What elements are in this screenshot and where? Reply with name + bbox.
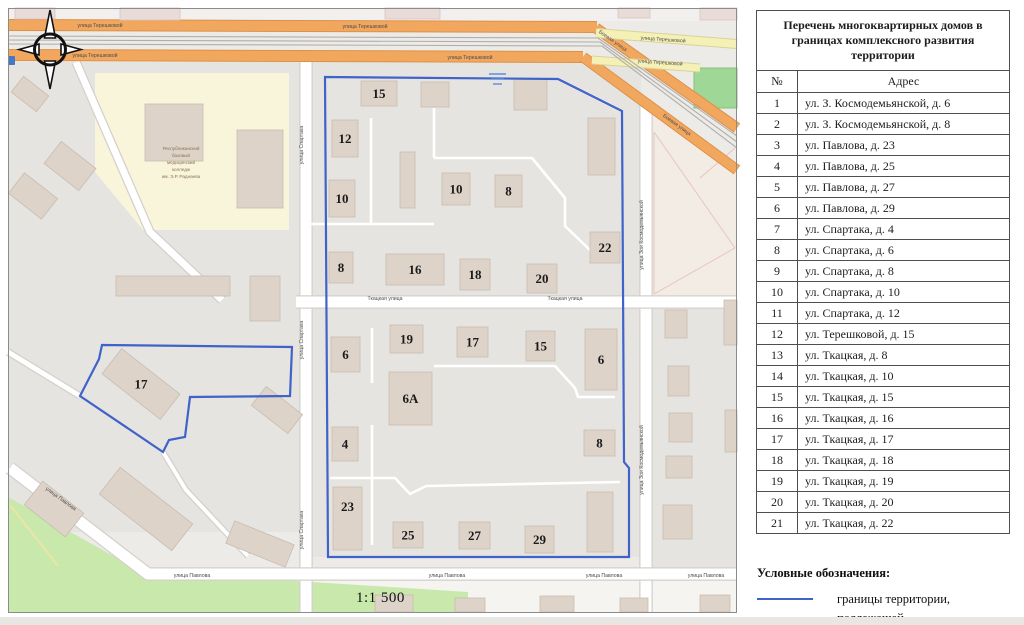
row-number: 14	[757, 366, 798, 387]
building-number: 17	[135, 377, 149, 392]
college-name-label: базовый	[172, 152, 190, 158]
building-6: 6	[331, 337, 360, 372]
college-name-label: им. Э.Р. Раднаева	[162, 174, 201, 179]
building-number: 4	[342, 437, 349, 452]
building-12: 12	[332, 120, 358, 157]
building-22: 22	[590, 232, 620, 263]
row-number: 1	[757, 93, 798, 114]
table-header-row: № Адрес	[757, 71, 1010, 93]
building-29: 29	[525, 526, 554, 553]
building	[620, 598, 648, 612]
building-footprint	[725, 410, 737, 452]
table-row: 3ул. Павлова, д. 23	[757, 135, 1010, 156]
college-name-label: Республиканский	[163, 145, 200, 151]
building-footprint	[700, 595, 730, 612]
row-number: 13	[757, 345, 798, 366]
street-name-label: улица Павлова	[174, 573, 211, 579]
table-row: 1ул. З. Космодемьянской, д. 6	[757, 93, 1010, 114]
building-number: 10	[450, 182, 463, 197]
page-edge-strip	[0, 617, 1024, 625]
building-number: 29	[533, 532, 547, 547]
column-header-number: №	[757, 71, 798, 93]
street-name-label: улица Павлова	[429, 573, 466, 579]
building	[116, 276, 230, 296]
building-number: 19	[400, 332, 414, 347]
building	[724, 300, 737, 345]
table-row: 2ул. З. Космодемьянской, д. 8	[757, 114, 1010, 135]
building-footprint	[333, 487, 362, 550]
row-address: ул. Ткацкая, д. 17	[798, 429, 1010, 450]
building	[700, 595, 730, 612]
street-name-label: улица Терешковой	[72, 52, 117, 59]
building-footprint	[250, 276, 280, 321]
building	[618, 8, 650, 18]
building-footprint	[669, 413, 692, 442]
street-name-label: улица Терешковой	[342, 23, 387, 30]
college-name-label: медицинский	[167, 159, 195, 165]
table-row: 7ул. Спартака, д. 4	[757, 219, 1010, 240]
row-address: ул. Ткацкая, д. 18	[798, 450, 1010, 471]
building-8: 8	[329, 252, 353, 283]
building-footprint	[421, 82, 449, 107]
building-6: 6	[585, 329, 617, 390]
address-table-panel: Перечень многоквартирных домов в граница…	[756, 10, 1010, 534]
building-number: 6	[342, 347, 349, 362]
map-scale-label: 1:1 500	[356, 590, 405, 606]
building-4: 4	[332, 427, 358, 461]
building-number: 15	[534, 339, 548, 354]
building	[385, 8, 440, 19]
building-number: 27	[468, 528, 482, 543]
row-number: 12	[757, 324, 798, 345]
table-row: 9ул. Спартака, д. 8	[757, 261, 1010, 282]
building-number: 8	[338, 260, 345, 275]
building	[665, 310, 687, 338]
building-number: 8	[596, 436, 603, 451]
building-16: 16	[386, 254, 444, 285]
row-number: 7	[757, 219, 798, 240]
building	[514, 79, 547, 110]
row-address: ул. З. Космодемьянской, д. 6	[798, 93, 1010, 114]
row-number: 19	[757, 471, 798, 492]
street-name-label: Ткацкая улица	[548, 296, 583, 302]
building-footprint	[120, 8, 180, 20]
building-footprint	[588, 118, 615, 175]
building-number: 20	[536, 271, 549, 286]
building	[666, 456, 692, 478]
row-number: 9	[757, 261, 798, 282]
building-number: 22	[599, 240, 612, 255]
row-address: ул. З. Космодемьянской, д. 8	[798, 114, 1010, 135]
building-number: 18	[469, 267, 483, 282]
building-footprint	[400, 152, 415, 208]
table-row: 16ул. Ткацкая, д. 16	[757, 408, 1010, 429]
building-footprint	[700, 8, 737, 20]
table-row: 17ул. Ткацкая, д. 17	[757, 429, 1010, 450]
page: 151210810228161820619171566А482325272917…	[0, 0, 1024, 625]
building	[700, 8, 737, 20]
building	[237, 130, 283, 208]
table-title: Перечень многоквартирных домов в граница…	[757, 11, 1010, 71]
building-number: 8	[505, 184, 512, 199]
row-address: ул. Спартака, д. 12	[798, 303, 1010, 324]
building-23: 23	[333, 487, 362, 550]
building-footprint	[116, 276, 230, 296]
legend-heading: Условные обозначения:	[757, 566, 1015, 581]
row-number: 11	[757, 303, 798, 324]
building-10: 10	[442, 173, 470, 205]
building	[725, 410, 737, 452]
building-number: 6А	[403, 391, 420, 406]
table-row: 18ул. Ткацкая, д. 18	[757, 450, 1010, 471]
building-number: 12	[339, 131, 352, 146]
building-footprint	[514, 79, 547, 110]
row-number: 21	[757, 513, 798, 534]
building-footprint	[385, 8, 440, 19]
row-address: ул. Ткацкая, д. 22	[798, 513, 1010, 534]
building	[668, 366, 689, 396]
table-row: 14ул. Ткацкая, д. 10	[757, 366, 1010, 387]
table-row: 5ул. Павлова, д. 27	[757, 177, 1010, 198]
map-canvas: 151210810228161820619171566А482325272917…	[0, 0, 745, 625]
building-15: 15	[361, 81, 397, 106]
building-6А: 6А	[389, 372, 432, 425]
row-address: ул. Терешковой, д. 15	[798, 324, 1010, 345]
street-name-label: улица Спартака	[299, 321, 305, 359]
building-10: 10	[329, 180, 355, 217]
row-number: 3	[757, 135, 798, 156]
building	[540, 596, 574, 612]
street-name-label: улица Терешковой	[447, 54, 492, 61]
row-address: ул. Павлова, д. 27	[798, 177, 1010, 198]
address-table: Перечень многоквартирных домов в граница…	[756, 10, 1010, 534]
street-name-label: улица Зои Космодемьянской	[638, 200, 645, 270]
building-18: 18	[460, 259, 490, 290]
bus-stop-icon	[8, 56, 15, 65]
building-number: 23	[341, 499, 355, 514]
row-address: ул. Спартака, д. 10	[798, 282, 1010, 303]
row-address: ул. Ткацкая, д. 16	[798, 408, 1010, 429]
building-8: 8	[495, 175, 522, 207]
building-number: 15	[373, 86, 387, 101]
building-footprint	[620, 598, 648, 612]
row-address: ул. Спартака, д. 8	[798, 261, 1010, 282]
legend-boundary-line-icon	[757, 598, 813, 600]
building-8: 8	[584, 430, 615, 456]
street-name-label: улица Павлова	[688, 573, 725, 579]
college-name-label: колледж	[172, 167, 191, 172]
row-number: 8	[757, 240, 798, 261]
building	[455, 598, 485, 612]
row-address: ул. Ткацкая, д. 15	[798, 387, 1010, 408]
row-address: ул. Ткацкая, д. 8	[798, 345, 1010, 366]
row-number: 6	[757, 198, 798, 219]
building-footprint	[587, 492, 613, 552]
row-number: 2	[757, 114, 798, 135]
building-footprint	[663, 505, 692, 539]
row-address: ул. Павлова, д. 29	[798, 198, 1010, 219]
table-row: 6ул. Павлова, д. 29	[757, 198, 1010, 219]
table-row: 19ул. Ткацкая, д. 19	[757, 471, 1010, 492]
building-footprint	[666, 456, 692, 478]
row-address: ул. Ткацкая, д. 10	[798, 366, 1010, 387]
building-footprint	[724, 300, 737, 345]
building	[587, 492, 613, 552]
row-address: ул. Павлова, д. 25	[798, 156, 1010, 177]
building-footprint	[618, 8, 650, 18]
table-row: 4ул. Павлова, д. 25	[757, 156, 1010, 177]
building-number: 17	[466, 335, 480, 350]
row-number: 10	[757, 282, 798, 303]
building-20: 20	[527, 264, 557, 293]
row-number: 16	[757, 408, 798, 429]
building	[400, 152, 415, 208]
street-name-label: Ткацкая улица	[368, 296, 403, 302]
row-address: ул. Спартака, д. 4	[798, 219, 1010, 240]
building-number: 6	[598, 352, 605, 367]
building-15: 15	[526, 331, 555, 361]
row-number: 4	[757, 156, 798, 177]
row-number: 17	[757, 429, 798, 450]
table-row: 21ул. Ткацкая, д. 22	[757, 513, 1010, 534]
row-address: ул. Павлова, д. 23	[798, 135, 1010, 156]
table-title-row: Перечень многоквартирных домов в граница…	[757, 11, 1010, 71]
table-row: 13ул. Ткацкая, д. 8	[757, 345, 1010, 366]
building-footprint	[668, 366, 689, 396]
building	[421, 82, 449, 107]
building-17: 17	[457, 327, 488, 357]
street-name-label: улица Спартака	[299, 126, 305, 164]
table-row: 20ул. Ткацкая, д. 20	[757, 492, 1010, 513]
table-row: 15ул. Ткацкая, д. 15	[757, 387, 1010, 408]
building-25: 25	[393, 522, 423, 548]
building-19: 19	[390, 325, 423, 353]
building-number: 25	[402, 528, 416, 543]
building-footprint	[540, 596, 574, 612]
table-row: 11ул. Спартака, д. 12	[757, 303, 1010, 324]
building-footprint	[665, 310, 687, 338]
row-number: 20	[757, 492, 798, 513]
building	[120, 8, 180, 20]
table-row: 10ул. Спартака, д. 10	[757, 282, 1010, 303]
row-number: 18	[757, 450, 798, 471]
building-footprint	[237, 130, 283, 208]
column-header-address: Адрес	[798, 71, 1010, 93]
street-name-label: улица Спартака	[299, 511, 305, 549]
building	[588, 118, 615, 175]
street-name-label: улица Терешковой	[77, 22, 122, 29]
row-number: 15	[757, 387, 798, 408]
row-address: ул. Спартака, д. 6	[798, 240, 1010, 261]
building-number: 10	[336, 191, 349, 206]
building	[250, 276, 280, 321]
row-address: ул. Ткацкая, д. 20	[798, 492, 1010, 513]
building-27: 27	[459, 522, 490, 549]
street-name-label: улица Павлова	[586, 573, 623, 579]
map-layers: 151210810228161820619171566А482325272917…	[8, 8, 737, 613]
table-row: 12ул. Терешковой, д. 15	[757, 324, 1010, 345]
building	[669, 413, 692, 442]
row-number: 5	[757, 177, 798, 198]
street-name-label: улица Зои Космодемьянской	[638, 425, 645, 495]
building	[663, 505, 692, 539]
building-footprint	[455, 598, 485, 612]
table-row: 8ул. Спартака, д. 6	[757, 240, 1010, 261]
row-address: ул. Ткацкая, д. 19	[798, 471, 1010, 492]
building-number: 16	[409, 262, 423, 277]
